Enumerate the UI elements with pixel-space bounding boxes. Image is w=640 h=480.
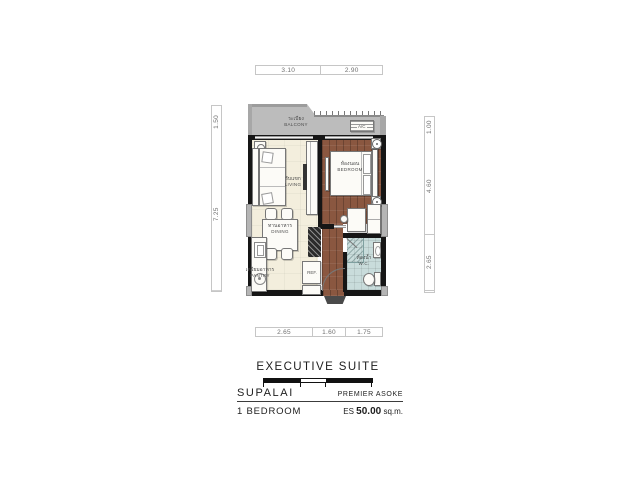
sink [254,242,266,258]
scale-bar-segment [264,379,301,382]
dim-label: 1.50 [212,106,221,138]
ac-label: A/C [357,125,367,130]
sofa-pillow [261,192,274,205]
entrance-step [324,296,346,304]
pantry-label: เตรียมอาหาร PANTRY [241,267,279,278]
cabinet [302,285,321,295]
wall-living-bedroom [318,140,322,226]
area-unit: sq.m. [383,407,403,416]
dim-label: 1.60 [312,328,345,336]
dim-label: 4.60 [425,138,434,235]
scale-bar-segment [301,379,326,382]
console-shelf-line [310,142,311,214]
bed-bench [325,157,329,191]
scale-bar-segment [326,379,372,382]
table-lamp-icon [372,139,382,149]
column [246,204,252,237]
toilet-tank [374,272,381,286]
unit-floor-plan: A/C ระเบียง BALCONY [250,104,384,296]
balcony-side-wall [248,104,252,138]
pillow [363,175,371,195]
lamp-dot [376,143,378,145]
wc-label: ห้องน้ำ W.C. [349,255,379,266]
floor-plan-page: 3.10 2.90 1.50 7.25 1.00 4.60 2.65 2.65 … [0,0,640,480]
column [381,204,388,237]
dim-label: 3.10 [256,66,320,74]
project-name: PREMIER ASOKE [338,391,403,399]
balcony-sliding-door [255,136,313,139]
desk [347,208,366,232]
brand-name: SUPALAI [237,387,294,399]
balcony-label: ระเบียง BALCONY [272,116,320,127]
area-value: 50.00 [356,406,381,417]
dining-label: ทานอาหาร DINING [262,223,298,234]
refrigerator-label: REF. [306,271,318,276]
dim-label: 2.65 [425,235,434,291]
toilet-bowl [363,273,375,286]
lamp-dot [376,201,378,203]
sink-basin [257,245,264,256]
desk-stool [340,215,348,223]
headboard [372,149,378,198]
dim-strip-right: 1.00 4.60 2.65 [424,116,435,293]
dim-strip-top: 3.10 2.90 [255,65,383,75]
wall-bottom [344,290,386,296]
bedroom-window [325,136,373,139]
dim-label: 1.00 [425,117,434,138]
ac-condenser-unit: A/C [350,120,374,132]
dim-label: 2.65 [256,328,312,336]
refrigerator: REF. [302,261,321,284]
bed-linen-line [361,152,362,195]
pantry-counter [251,237,267,292]
bedroom-label: ห้องนอน BEDROOM [332,161,368,172]
column [381,286,388,296]
brand-row: SUPALAI PREMIER ASOKE [237,386,403,399]
shoe-cabinet [308,227,321,257]
dim-strip-left: 1.50 7.25 [211,105,222,292]
dim-label: 1.75 [345,328,382,336]
unit-type-title: EXECUTIVE SUITE [240,361,396,373]
wardrobe-door-line [368,219,380,220]
divider-rule [237,401,403,402]
dim-label: 2.90 [320,66,382,74]
dim-strip-bottom: 2.65 1.60 1.75 [255,327,383,337]
area-prefix: ES [343,407,354,416]
unit-summary-row: 1 BEDROOM ES 50.00 sq.m. [237,404,403,417]
bed [330,151,372,196]
sofa-pillow [261,151,273,163]
balcony-railing [314,115,384,117]
dim-label: 7.25 [212,138,221,291]
sofa-back [252,148,259,206]
scale-bar [263,378,373,383]
living-label: รับแขก LIVING [276,176,310,187]
dining-chair [281,248,293,260]
sofa-cushion-line [260,167,285,168]
wardrobe [367,204,381,234]
balcony-parapet [250,104,307,107]
bedroom-count: 1 BEDROOM [237,406,301,417]
bedroom-sliding-door [334,225,346,228]
unit-area: ES 50.00 sq.m. [343,406,403,417]
